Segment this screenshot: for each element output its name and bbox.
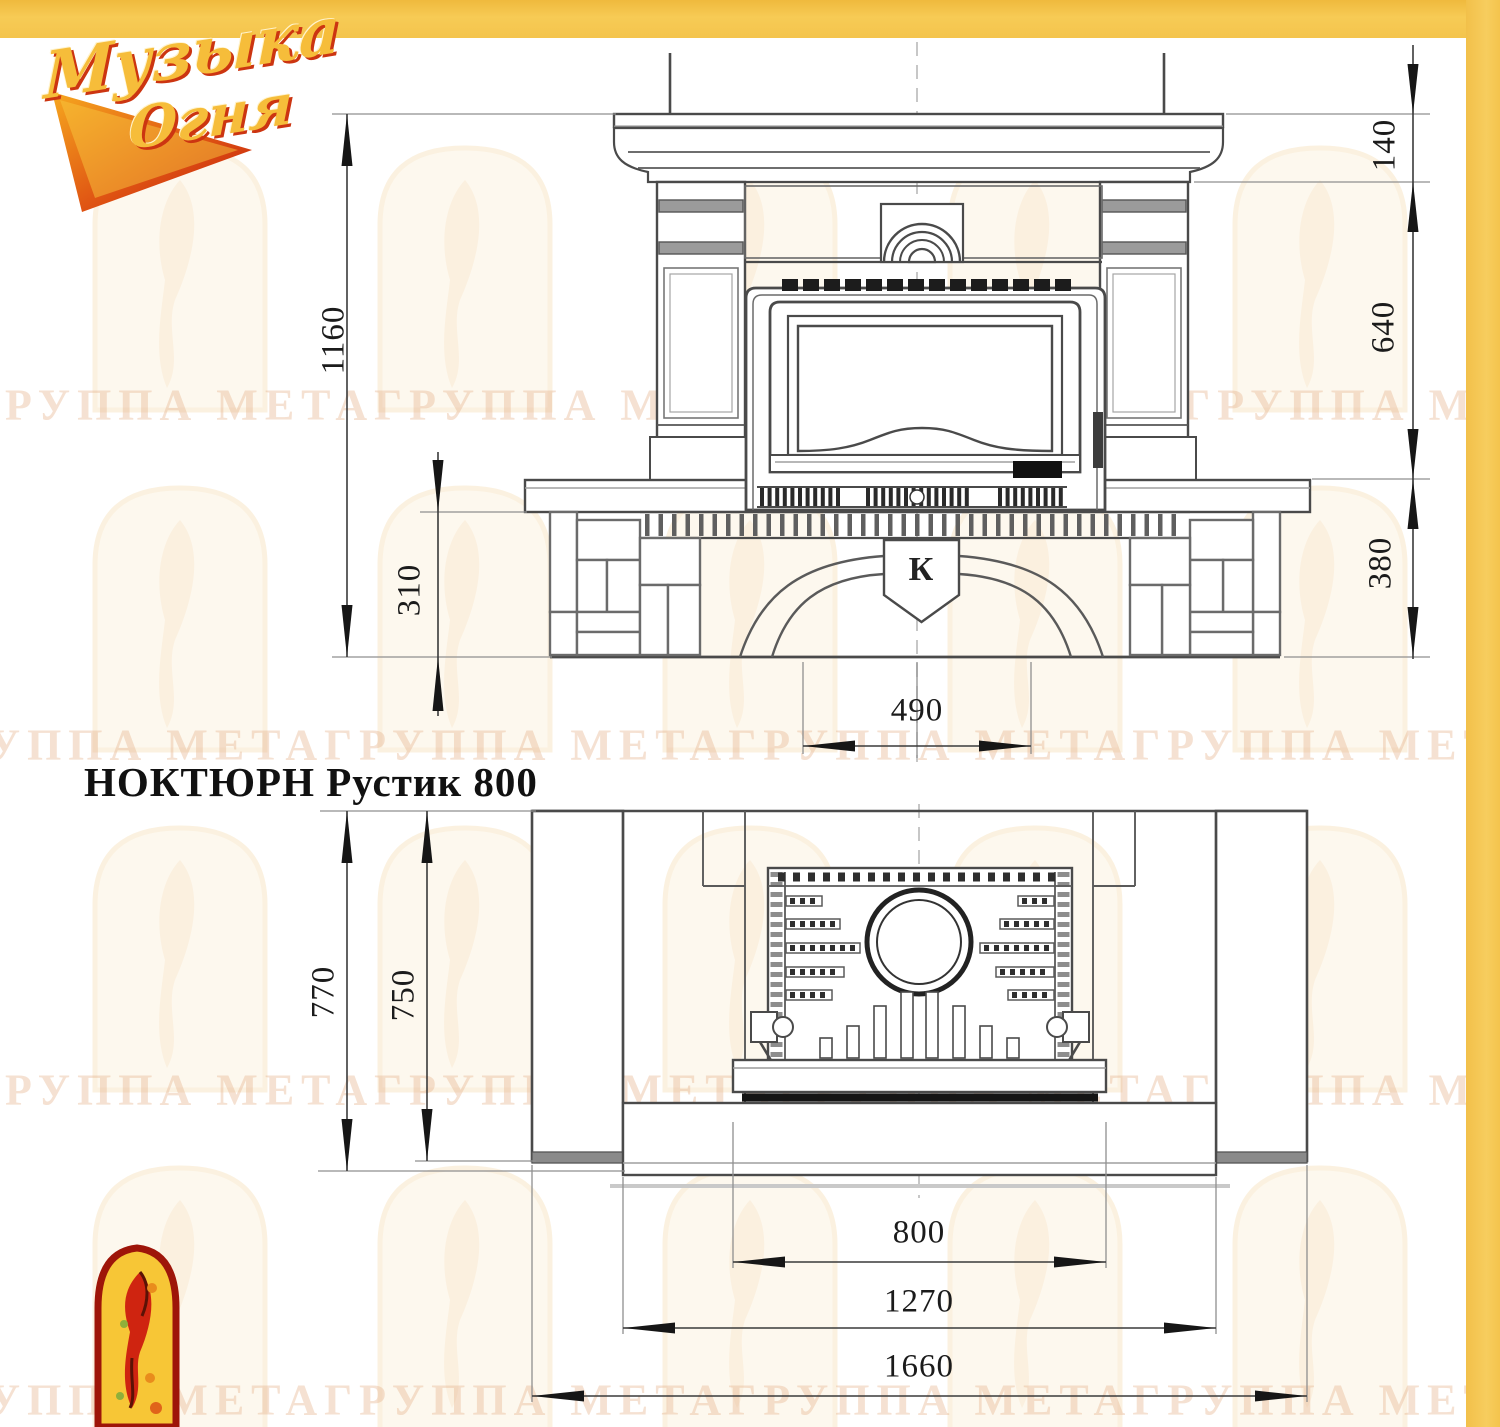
brand-logo: Музыка Огня (0, 0, 300, 240)
firebird-arch-logo (90, 1238, 190, 1427)
plan-view-insert (733, 868, 1106, 1098)
dim-front-total-height: 1160 (318, 306, 351, 375)
model-title: НОКТЮРН Рустик 800 (84, 758, 538, 806)
right-accent-band (1466, 0, 1500, 1427)
front-view-chimney (670, 53, 1164, 114)
dim-plan-total-width: 1660 (884, 1351, 954, 1384)
front-view-frieze (745, 186, 1102, 262)
dim-front-shelf-height: 140 (1369, 119, 1402, 172)
dim-plan-insert-width: 800 (893, 1217, 946, 1250)
frieze-arch-ornament (881, 204, 963, 262)
dim-front-opening-width: 490 (891, 695, 944, 728)
dim-front-middle-height: 640 (1368, 301, 1401, 354)
front-view-baluster-band (640, 512, 1190, 538)
front-view-firebox (746, 285, 1105, 510)
dim-plan-hearth-width: 1270 (884, 1286, 954, 1319)
front-view-mantel-shelf (614, 114, 1223, 182)
dim-front-plinth-height: 310 (394, 564, 427, 617)
dim-plan-body-depth: 750 (388, 969, 421, 1022)
drawing-sheet: ГРУППА МЕТАГРУППА МЕТАГРУППА МЕТАГРУППА … (0, 0, 1500, 1427)
dim-front-base-height: 380 (1365, 537, 1398, 590)
base-emblem-letter: К (909, 551, 934, 589)
dim-plan-total-depth: 770 (308, 966, 341, 1019)
